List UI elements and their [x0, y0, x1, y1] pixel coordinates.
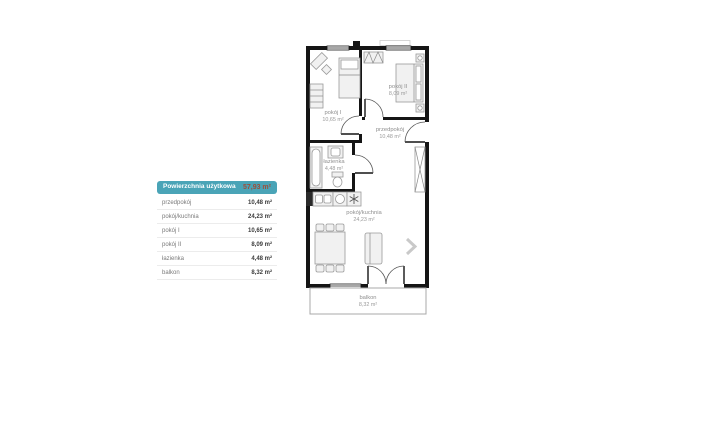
- living-room-furniture: [315, 224, 415, 272]
- area-pokoj2: 8,09 m²: [389, 91, 407, 97]
- label-pokoj2: pokój II: [389, 84, 408, 90]
- chair: [322, 65, 332, 75]
- floor-plan: pokój I 10,65 m² pokój II 8,09 m² przedp…: [0, 0, 710, 424]
- chair: [336, 224, 344, 231]
- area-lazienka: 4,48 m²: [325, 166, 343, 172]
- area-balkon: 8,32 m²: [359, 302, 377, 308]
- label-lazienka: łazienka: [323, 159, 345, 165]
- pillow: [341, 60, 358, 69]
- kitchen-fixtures: [306, 192, 361, 206]
- sofa: [365, 233, 382, 264]
- area-salon: 24,23 m²: [353, 217, 374, 223]
- chair: [336, 265, 344, 272]
- label-salon: pokój/kuchnia: [346, 210, 382, 216]
- tv: [407, 239, 415, 254]
- dining-table: [315, 232, 345, 264]
- area-przedpokoj: 10,48 m²: [379, 134, 400, 140]
- shaft: [306, 192, 313, 206]
- label-balkon: balkon: [359, 295, 376, 301]
- pillow: [416, 84, 421, 100]
- hallway-furniture: [415, 147, 425, 192]
- label-przedpokoj: przedpokój: [376, 127, 404, 133]
- chair: [316, 265, 324, 272]
- chair: [316, 224, 324, 231]
- label-pokoj1: pokój I: [324, 110, 341, 116]
- room-pokoj2-furniture: [364, 52, 424, 112]
- toilet: [332, 172, 343, 177]
- chair: [326, 265, 334, 272]
- neighbour-outline: [353, 41, 410, 47]
- room-pokoj1-furniture: [310, 53, 360, 108]
- pillow: [416, 66, 421, 82]
- area-pokoj1: 10,65 m²: [322, 117, 343, 123]
- chair: [326, 224, 334, 231]
- balcony-outline: [310, 288, 426, 314]
